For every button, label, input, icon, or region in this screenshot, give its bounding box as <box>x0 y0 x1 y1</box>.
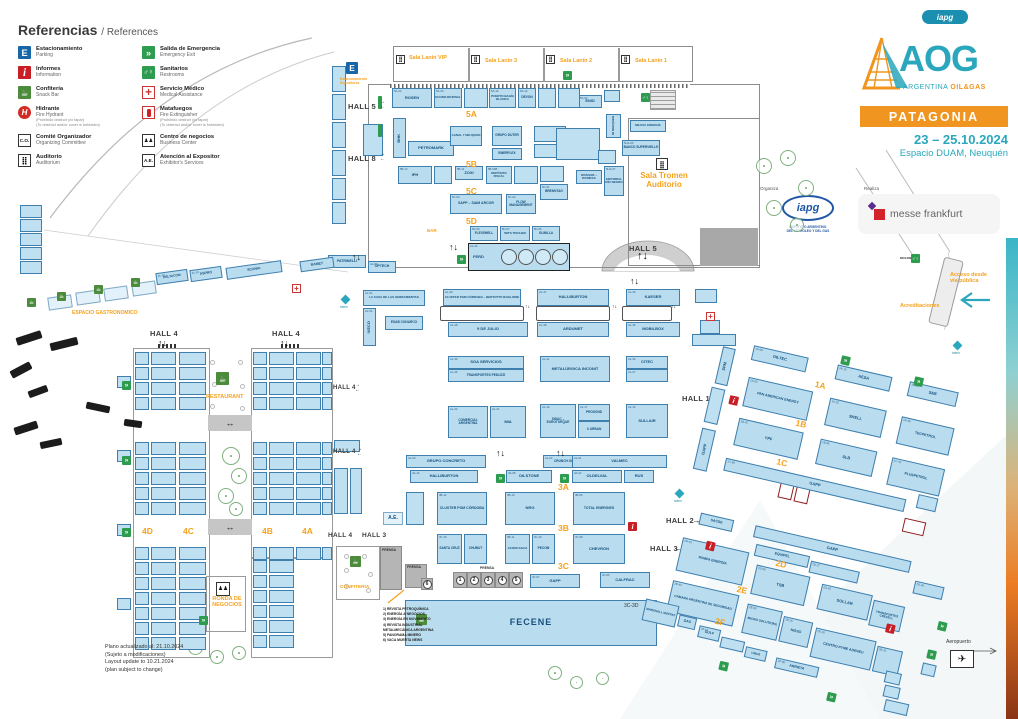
tree-icon <box>780 150 796 166</box>
booth: 2D-27 <box>808 561 859 584</box>
areaL-label: Sala Tromen Auditorio <box>620 172 708 190</box>
zone-label: 5A <box>466 110 477 120</box>
two-way-arrows-icon: → ← <box>355 447 364 456</box>
booth <box>883 699 909 716</box>
booth <box>406 492 424 525</box>
booth-code: 5C-01 <box>542 186 550 189</box>
emergency-exit-icon: » <box>840 355 851 366</box>
table-icon <box>344 554 349 559</box>
booth <box>334 468 348 514</box>
auditorium-icon: ⣿ <box>396 55 405 64</box>
updown-arrows-icon: ↑↓ <box>637 250 648 261</box>
booth-wits-tischer: 5D-07WITS TISCHER <box>500 226 530 241</box>
tank-icon <box>535 249 551 265</box>
booth <box>253 397 267 410</box>
tank-icon <box>552 249 568 265</box>
booth <box>322 382 332 395</box>
booth-code: 3C-10 <box>534 536 542 539</box>
booth-code: 5B-09B <box>488 168 497 171</box>
booth <box>135 577 149 590</box>
booth-label: MILICIC ENERGÍA <box>635 124 661 127</box>
auditorium-icon: ⣿ <box>546 55 555 64</box>
info-icon: i <box>728 395 739 406</box>
booth-label: SANTA CRUZ <box>439 547 459 550</box>
emergency-exit-icon: » <box>718 661 729 672</box>
booth-label: COMERCIAL ARGENTINA <box>449 419 487 426</box>
auditorium-icon: ⣿ <box>471 55 480 64</box>
booth-label: SULLAIR <box>638 419 655 423</box>
dark-label: 3C-3D <box>624 604 638 610</box>
booth <box>296 397 321 410</box>
booth <box>253 367 267 380</box>
zone-label: 1A <box>814 380 827 392</box>
vehicle-icon <box>40 438 63 449</box>
booth <box>253 547 267 560</box>
snack-bar-icon: ☕ <box>57 292 66 301</box>
booth-label: CHUBUT <box>469 547 482 550</box>
booth-code: 1C-60 <box>727 460 735 465</box>
booth <box>322 367 332 380</box>
booth-ferd: AL-44FERD <box>468 243 570 271</box>
booth-im-neuquen: IM NEUQUEN <box>606 114 621 138</box>
emergency-exit-icon: » <box>122 456 131 465</box>
booth-label: OILTEC <box>772 355 787 362</box>
booth-label: MIA <box>504 420 511 424</box>
area-label: RONDA DE NEGOCIOS <box>207 596 247 608</box>
emergency-exit-icon: » <box>560 474 569 483</box>
booth-ramet: RAMET <box>299 257 334 273</box>
booth <box>253 620 267 633</box>
booth-label: ARRIETA <box>789 664 805 671</box>
booth-label: OLDELVAL <box>587 474 608 478</box>
press-number-box: 6 <box>421 578 433 590</box>
booth-milicic-energ-a: MILICIC ENERGÍA <box>630 120 666 132</box>
totem-icon <box>341 295 351 305</box>
updown-arrows-icon: ↑↓ <box>449 242 458 251</box>
booth <box>179 502 206 515</box>
booth-oldelval: 3A-02OLDELVAL <box>572 470 622 483</box>
booth-grupo-concreto: AL-09GRUPO CONCRETO <box>406 455 486 468</box>
booth-label: GAPP <box>826 546 838 553</box>
booth <box>179 457 206 470</box>
booth <box>882 684 900 699</box>
emergency-exit-icon: » <box>199 616 208 625</box>
booth-gulf: 2F-18GULF <box>697 625 721 642</box>
booth-9-de-julio: AL-489 DE JULIO <box>448 322 528 337</box>
booth-tecpetrol: 1A-36TECPETROL <box>896 416 955 455</box>
press-number-box: 5 <box>509 572 523 588</box>
snack-bar-icon: ☕ <box>27 298 36 307</box>
booth <box>350 468 362 514</box>
booth-code: 1A-03 <box>750 379 758 384</box>
booth-gunilla: 5D-05GUNILLA <box>532 226 560 241</box>
booth-devon: 5A-12DEVON <box>518 88 536 108</box>
booth <box>253 472 267 485</box>
booth-code: AL-47 <box>539 291 546 294</box>
booth <box>322 397 332 410</box>
tree-icon <box>596 672 609 685</box>
booth-mobilbox: AL-36MOBILBOX <box>626 322 680 337</box>
booth-code: 1C-42 <box>893 459 901 464</box>
zone-label: 2E <box>736 585 748 597</box>
hall1-block: SPMGAPP1A-09OILTEC1A-10AESA1A-06SMF1A-03… <box>689 338 966 540</box>
booth-label: VALMEC <box>611 459 628 463</box>
booth <box>135 352 149 365</box>
booth-code: 2E-43 <box>674 582 682 587</box>
booth <box>151 472 176 485</box>
booth-label: SPM <box>722 362 728 371</box>
booth-code: AL-35 <box>450 371 457 374</box>
tank-icon <box>518 249 534 265</box>
booth <box>598 150 616 164</box>
updown-arrows-icon: ↑↓ <box>671 304 676 309</box>
floor-plan: ↔↔5A-24ROSEN5A-20ECONOJOURNAL5A-14PUERTO… <box>0 0 1018 719</box>
booth-sga-servicios: AL-39SGA SERVICIOS <box>448 356 524 369</box>
booth-bhk: BHK <box>393 118 406 158</box>
tree-icon <box>231 468 247 484</box>
booth-code: 1B-08 <box>822 441 830 446</box>
booth-code: 2D-45 <box>916 582 924 587</box>
booth-banco-supervielle: 5HA-05BANCO SUPERVIELLE <box>622 140 660 156</box>
emergency-exit-icon: » <box>563 71 572 80</box>
booth-prosond: AL-17PROSOND <box>578 404 610 421</box>
booth-label: SHELL <box>849 414 863 421</box>
booth-citec: AL-34CITEC <box>626 356 668 369</box>
booth-label: A.E. <box>388 516 398 521</box>
booth-deltacom: AL-82DELTACOM <box>155 269 188 285</box>
updown-arrows-icon: ↑↓ <box>352 252 361 261</box>
booth-label: AESA <box>858 375 870 382</box>
booth-sidac-eurotorque: AL-19SIDAC – EUROTORQUE <box>540 404 576 438</box>
booth <box>322 442 332 455</box>
booth <box>322 472 332 485</box>
zone-label: 3B <box>558 524 569 534</box>
zone-label: 5C <box>466 187 477 197</box>
totem-label: totem <box>674 499 682 503</box>
booth-a-e: A.E. <box>383 512 403 525</box>
vehicle-icon <box>49 337 78 352</box>
booth <box>332 178 346 200</box>
booth-label: GAPP <box>809 482 821 489</box>
medical-icon: + <box>292 284 301 293</box>
booth-nrg: 3B-10NRG <box>505 492 555 525</box>
tiny-label: Estacionamiento Expositores <box>340 78 367 86</box>
booth-code: 5A-14 <box>491 90 498 93</box>
booth-sollar: 2D-40SOLLAR <box>816 584 873 621</box>
press-number-box: 1 <box>453 572 467 588</box>
business-center-icon: ♟♟ <box>216 582 230 596</box>
zone-label: 5B <box>466 160 477 170</box>
booth <box>179 382 206 395</box>
booth-label: DEVON <box>521 96 532 99</box>
table-icon <box>344 568 349 573</box>
tree-icon <box>548 666 562 680</box>
restrooms-icon: ♂♀ <box>911 254 920 263</box>
booth <box>253 590 267 603</box>
tree-icon <box>756 158 772 174</box>
booth <box>269 487 294 500</box>
booth-brenntag: 5C-01BRENNTAG <box>540 184 568 200</box>
totem-icon <box>953 341 963 351</box>
booth <box>296 352 321 365</box>
hall-label: HALL 1 <box>682 395 710 403</box>
press-list-line: 4) REVISTA INDUSTRIAL <box>383 624 423 628</box>
booth <box>269 547 294 560</box>
booth <box>332 94 346 120</box>
booth-la-casa-de-las-herramientas: AL-51LA CASA DE LAS HERRAMIENTAS <box>363 290 425 306</box>
booth-label: SGA SERVICIOS <box>470 360 501 364</box>
plan-update-note: Layout update to 10.21.2024 <box>105 659 174 665</box>
booth <box>151 562 176 575</box>
booth <box>135 562 149 575</box>
booth <box>269 635 294 648</box>
booth <box>296 472 321 485</box>
booth-code: AL-01 <box>574 457 581 460</box>
booth <box>179 367 206 380</box>
snack-bar-icon: ☕ <box>350 556 361 567</box>
sala-divider <box>543 48 545 82</box>
area-label: Acceso desde vía pública <box>950 272 1006 284</box>
booth <box>151 442 176 455</box>
booth-label: OPTECH <box>375 265 390 269</box>
booth-label: PROSOND <box>586 411 602 414</box>
booth-aesa: 1A-10AESA <box>835 365 893 392</box>
booth-libus: LIBUS <box>744 646 768 662</box>
booth-label: CALFRAC <box>615 578 634 582</box>
area-label: Acreditaciones <box>900 303 939 309</box>
booth-code: 1A-36 <box>903 418 911 423</box>
zone-label: 3A <box>558 483 569 493</box>
emergency-exit-icon: » <box>457 255 466 264</box>
auditorium-icon: ⣿ <box>656 158 668 170</box>
updown-arrows-icon: ↑↓ <box>556 448 565 457</box>
emergency-exit-icon: » <box>122 381 131 390</box>
booth-code: AL-38 <box>539 324 546 327</box>
tree-icon <box>218 488 234 504</box>
booth-label: TSB <box>776 582 785 588</box>
updown-arrows-icon: ↑↓ <box>630 276 639 285</box>
booth-label: SACSE <box>710 519 723 525</box>
table-icon <box>210 404 215 409</box>
booth <box>179 472 206 485</box>
booth-label: PUERTO BAHÍA BLANCA <box>490 95 515 101</box>
booth <box>179 577 206 590</box>
info-icon: i <box>885 623 896 634</box>
booth-flexshell: 5D-09FLEXSHELL <box>470 226 498 241</box>
hall-label: HALL 5 <box>348 103 376 111</box>
medical-icon: + <box>706 312 715 321</box>
totem-icon <box>675 489 685 499</box>
area-label: Sala Lanin 3 <box>485 58 535 64</box>
edge-gradient-bar <box>1006 238 1018 719</box>
booth <box>253 560 267 573</box>
booth <box>253 487 267 500</box>
booth-code: AL-51 <box>365 292 372 295</box>
booth-code: 5C-02 <box>508 196 516 199</box>
tree-icon <box>229 502 243 516</box>
booth-label: FLOW MANAGEMENT <box>507 201 535 208</box>
tree-icon <box>210 650 224 664</box>
booth <box>538 88 556 108</box>
booth <box>151 577 176 590</box>
booth-dosivar-dosirac: DOSIVAR – DOSIRAC <box>576 170 602 184</box>
walkway: ↔ <box>208 415 252 431</box>
booth <box>253 382 267 395</box>
booth <box>20 233 42 246</box>
booth-code: 5HA-05 <box>624 142 633 145</box>
plan-update-note: (Sujeto a modificaciones) <box>105 652 166 658</box>
booth-label: DELTACOM <box>163 274 181 280</box>
booth-label: CÁMARA ARGENTINA DE SEGURIDAD <box>674 595 732 612</box>
snack-bar-icon: ☕ <box>216 372 229 385</box>
booth-cluster-pgm-c-rdoba-bertotto-boglione: AL-49CLUSTER PGM CÓRDOBA – BERTOTTO BOGL… <box>443 289 521 306</box>
booth <box>464 88 488 108</box>
booth-code: 2D-40 <box>823 586 831 591</box>
zone-label: 1B <box>795 419 808 431</box>
booth <box>322 352 332 365</box>
booth-halliburton: 3A-14HALLIBURTON <box>410 470 478 483</box>
booth <box>269 620 294 633</box>
booth-sacse: SACSE <box>698 513 734 532</box>
booth <box>179 442 206 455</box>
booth-label: GRUPO CONCRETO <box>427 459 466 463</box>
area-label: CONFITERÍA <box>340 585 369 590</box>
booth <box>269 605 294 618</box>
booth <box>151 457 176 470</box>
booth-code: 3B-11 <box>507 536 514 539</box>
booth-code: 3C-05 <box>602 574 610 577</box>
booth <box>604 90 620 102</box>
booth <box>269 367 294 380</box>
booth-label: PETROMARK <box>418 146 444 150</box>
booth-code: 2E-06 <box>749 605 757 610</box>
booth-gapp: 3C-07GAPP <box>530 574 580 588</box>
booth-petromark: PETROMARK <box>408 141 454 156</box>
booth <box>135 547 149 560</box>
booth <box>269 397 294 410</box>
booth <box>135 502 149 515</box>
table-icon <box>240 406 245 411</box>
updown-arrows-icon: ↑↓ <box>525 304 530 309</box>
booth <box>322 547 332 560</box>
booth-code: 5HA-07 <box>606 168 615 171</box>
booth <box>332 202 346 224</box>
booth <box>151 622 176 635</box>
walkway: ↔ <box>208 519 252 535</box>
accreditation-lane <box>928 257 964 328</box>
tree-icon <box>222 447 240 465</box>
booth <box>884 670 902 685</box>
booth-label: MARSHALL MOFFAT <box>646 608 676 618</box>
booth-micro-solutions: 2E-06MICRO SOLUTIONS <box>741 603 783 640</box>
booth <box>179 562 206 575</box>
booth <box>135 382 149 395</box>
booth-code: AL-52 <box>365 310 372 313</box>
booth-label: PLUSPETROL <box>904 472 928 481</box>
emergency-exit-icon: » <box>826 692 837 703</box>
booth <box>556 128 600 160</box>
vehicle-icon <box>13 420 38 435</box>
booth-label: BHK <box>397 134 401 143</box>
emergency-exit-icon: » <box>496 474 505 483</box>
booth-santa-cruz: 3C-15SANTA CRUZ <box>437 534 462 564</box>
table-icon <box>368 572 373 577</box>
booth <box>253 352 267 365</box>
booth-code: 2E-40 <box>817 629 825 634</box>
area-label: BAR <box>427 228 437 233</box>
zone-label: 1C <box>775 457 788 469</box>
tree-icon <box>798 180 814 196</box>
booth-label: CANAL 7 NEUQUEN <box>452 134 481 137</box>
booth-pecom: 3C-10PECOM <box>532 534 555 564</box>
booth-label: METALÚRGICA INCONIT <box>552 367 599 371</box>
booth-code: AL-39 <box>450 358 457 361</box>
booth <box>296 442 321 455</box>
booth-label: TRANSPORTES CREXELL <box>871 610 902 623</box>
tree-icon <box>570 676 583 689</box>
snack-bar-icon: ☕ <box>131 278 140 287</box>
booth-label: GAPP <box>549 579 560 583</box>
booth-code: 2D-43 <box>684 539 692 544</box>
booth-code: 1A-25 <box>831 400 839 405</box>
booth-label: FERD <box>473 255 484 259</box>
booth-code: 1B-42 <box>740 420 748 425</box>
area-label: ESPACIO GASTRONOMICO <box>72 311 137 317</box>
plan-update-note: Plano actualizado al: 21.10.2024 <box>105 644 183 650</box>
booth-code: 2D-27 <box>812 563 820 568</box>
booth <box>179 547 206 560</box>
corridor-entry <box>622 306 672 321</box>
booth-sapp-siam-arcor: 5C-04SAPP – SIAM ARCOR <box>450 194 502 214</box>
booth-code: 3A-08 <box>508 472 515 475</box>
booth-rosen: 5A-24ROSEN <box>392 88 432 108</box>
booth <box>695 289 717 303</box>
booth-code: 5D-05 <box>534 228 542 231</box>
booth <box>296 487 321 500</box>
booth-code: 5A-20 <box>436 90 443 93</box>
booth <box>269 590 294 603</box>
booth-ensi: 5A-02ENSI <box>578 95 602 108</box>
two-way-arrows-icon: → ← <box>378 152 387 161</box>
booth-label: ECONOJOURNAL <box>435 96 461 99</box>
booth-gapp: 1C-60GAPP <box>723 458 906 512</box>
booth-gas: GAS <box>677 614 697 630</box>
vehicle-icon <box>15 330 42 346</box>
corridor-entry <box>536 306 610 321</box>
booth <box>540 166 564 182</box>
booth-pluspetrol: 1C-42PLUSPETROL <box>886 457 945 496</box>
booth-code: 3C-07 <box>532 576 540 579</box>
area-label: Sala Lanin VIP <box>409 55 459 61</box>
zone-label: 5D <box>466 217 477 227</box>
booth-slb: 1B-08SLB <box>815 439 877 477</box>
booth-label: HALLIBURTON <box>430 474 459 478</box>
booth <box>269 560 294 573</box>
restrooms-icon: ♂♀ <box>641 93 650 102</box>
booth-code: 5D-09 <box>472 228 480 231</box>
booth <box>920 662 936 677</box>
updown-arrows-icon: ↑↓ <box>496 448 505 457</box>
hall-label: HALL 4 <box>328 532 352 539</box>
booth-fecene: FECENE <box>405 600 657 646</box>
booth-c-mara-argentina-de-seguridad: 2E-43CÁMARA ARGENTINA DE SEGURIDAD <box>666 580 739 626</box>
zone-label: 4B <box>262 527 273 537</box>
booth-label: PECOM <box>538 547 550 550</box>
booth-label: PAN AMERICAN ENERGY <box>757 392 799 405</box>
booth-label: IPH <box>412 173 419 177</box>
booth-label: IM NEUQUEN <box>612 116 615 135</box>
booth-cluster-pgm-c-rdoba: 3B-12CLUSTER PGM CÓRDOBA <box>437 492 487 525</box>
